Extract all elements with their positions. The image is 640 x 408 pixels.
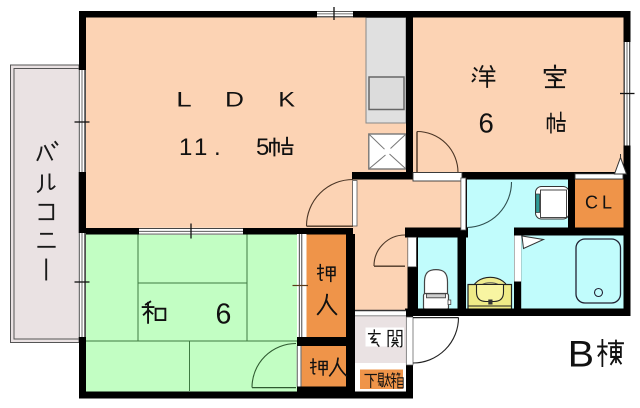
svg-text:6: 6 xyxy=(479,108,494,139)
svg-text:.: . xyxy=(214,134,221,161)
svg-text:1: 1 xyxy=(179,134,192,161)
svg-text:5: 5 xyxy=(256,134,269,161)
svg-text:L: L xyxy=(176,89,191,112)
svg-text:D: D xyxy=(225,88,244,112)
svg-text:B: B xyxy=(568,333,594,375)
svg-text:1: 1 xyxy=(194,134,207,161)
svg-text:K: K xyxy=(278,87,295,111)
svg-text:C: C xyxy=(585,193,598,213)
svg-text:6: 6 xyxy=(216,299,232,331)
svg-text:L: L xyxy=(602,193,612,213)
